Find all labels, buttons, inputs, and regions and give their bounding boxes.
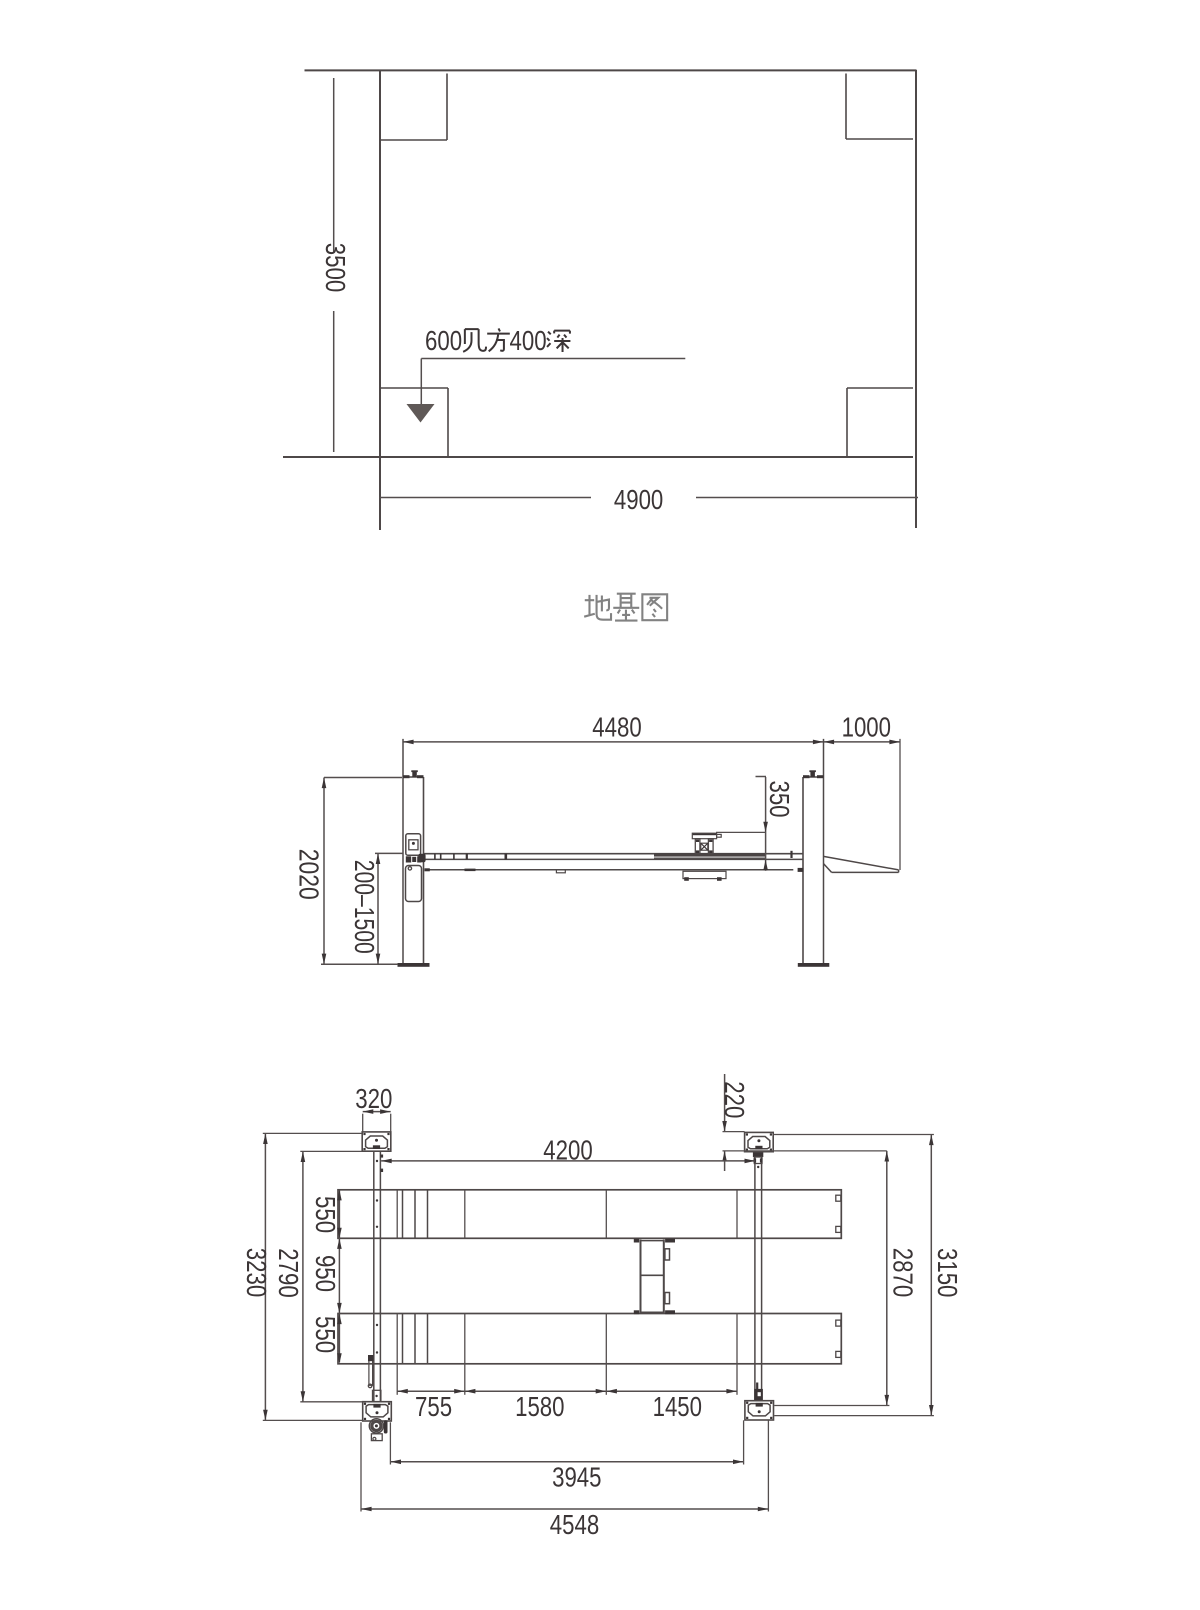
svg-text:3230: 3230 — [241, 1248, 273, 1297]
svg-text:350: 350 — [764, 780, 796, 817]
svg-text:755: 755 — [415, 1390, 452, 1422]
svg-text:200–1500: 200–1500 — [349, 860, 381, 954]
svg-text:320: 320 — [355, 1082, 392, 1114]
svg-text:3150: 3150 — [932, 1248, 964, 1297]
svg-text:4900: 4900 — [614, 483, 663, 515]
svg-text:550: 550 — [310, 1196, 342, 1233]
svg-text:4480: 4480 — [592, 711, 641, 743]
svg-text:1580: 1580 — [515, 1390, 564, 1422]
svg-text:4548: 4548 — [550, 1508, 599, 1540]
svg-text:4200: 4200 — [543, 1134, 592, 1166]
svg-text:2020: 2020 — [294, 849, 326, 900]
svg-text:950: 950 — [310, 1255, 342, 1292]
svg-text:2870: 2870 — [888, 1248, 920, 1297]
svg-text:1450: 1450 — [653, 1390, 702, 1422]
svg-text:550: 550 — [310, 1316, 342, 1353]
svg-text:220: 220 — [719, 1081, 751, 1118]
svg-text:1000: 1000 — [842, 711, 891, 743]
svg-text:3500: 3500 — [320, 243, 352, 292]
svg-text:3945: 3945 — [552, 1461, 601, 1493]
svg-text:600: 600 — [425, 324, 462, 356]
svg-text:2790: 2790 — [273, 1248, 305, 1297]
svg-text:400: 400 — [510, 324, 547, 356]
